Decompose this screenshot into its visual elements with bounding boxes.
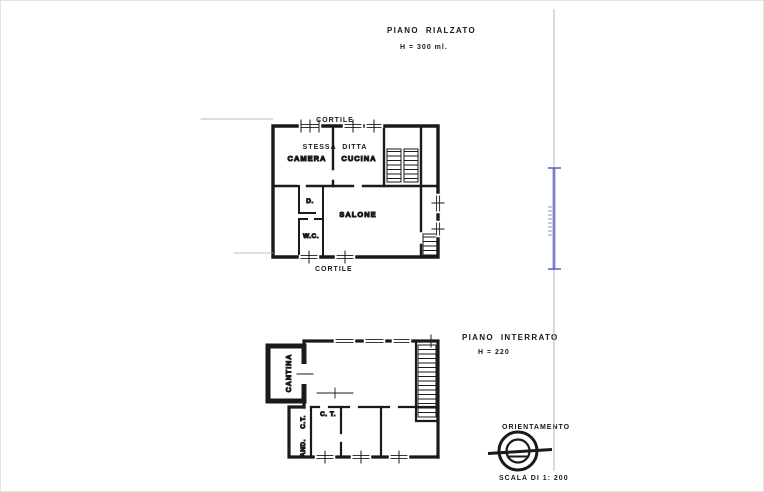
room-label-ct-vertical: C.T.	[300, 415, 307, 429]
lower-floor-plan: CANTINA C.T. AND. C. T.	[268, 335, 438, 463]
floor-plan-drawing: CAMERA CUCINA D. SALONE W.C.	[1, 1, 764, 492]
room-label-cantina: CANTINA	[286, 354, 293, 393]
room-label-salone: SALONE	[339, 210, 376, 219]
upper-lower-stairs-icon	[423, 234, 437, 256]
upper-stairs-icon	[387, 149, 418, 182]
room-label-androne: AND.	[300, 439, 307, 457]
property-boundary-line	[548, 9, 561, 471]
compass-icon	[488, 432, 552, 470]
room-label-ct-room: C. T.	[320, 411, 336, 418]
dimension-tick	[317, 388, 353, 398]
upper-floor-plan: CAMERA CUCINA D. SALONE W.C.	[201, 119, 444, 263]
planimetry-sheet: PIANO RIALZATO H = 300 ml. CORTILE STESS…	[0, 0, 764, 492]
illegible-margin-note	[548, 207, 552, 235]
room-label-disimpegno: D.	[306, 198, 314, 205]
room-label-wc: W.C.	[303, 233, 319, 240]
room-label-camera: CAMERA	[288, 154, 327, 163]
lower-windows-bottom	[317, 451, 407, 463]
lower-stairs-icon	[416, 341, 438, 421]
room-label-cucina: CUCINA	[341, 154, 376, 163]
